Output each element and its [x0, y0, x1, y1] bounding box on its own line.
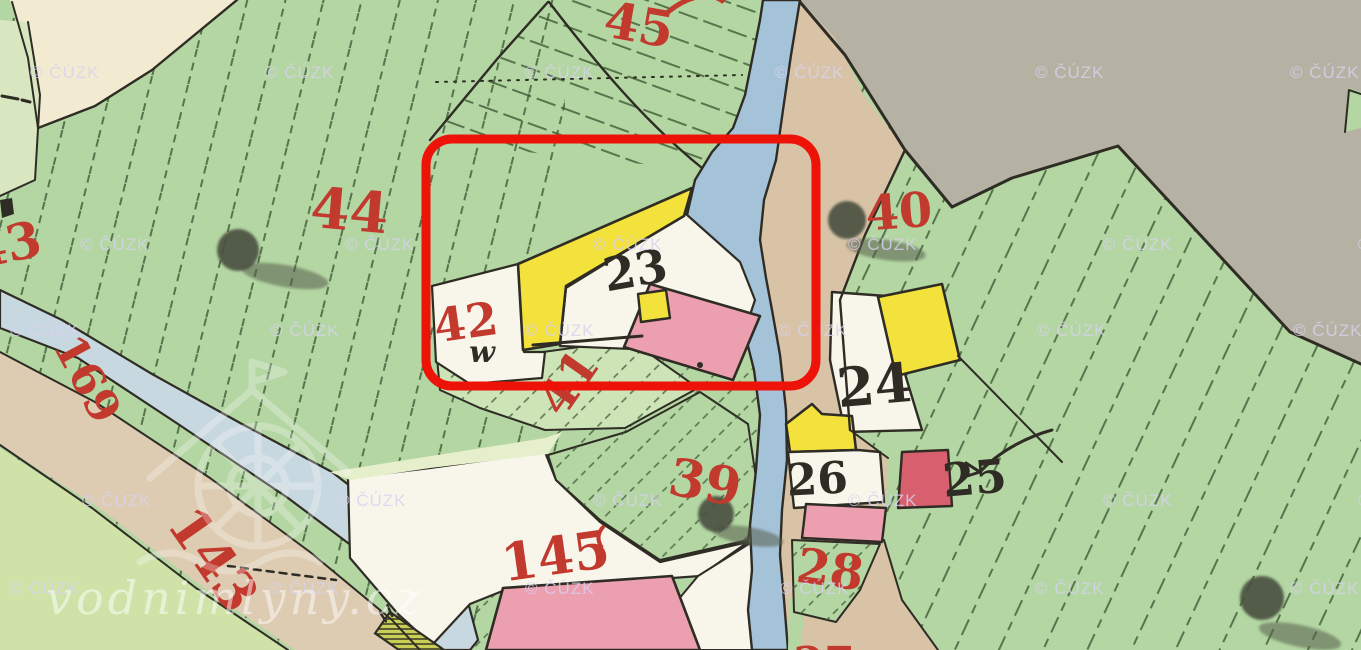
cuzk-watermark: © ČÚZK [1035, 63, 1105, 82]
cuzk-watermark: © ČÚZK [270, 321, 340, 340]
cuzk-watermark: © ČÚZK [1293, 321, 1361, 340]
cuzk-watermark: © ČÚZK [1290, 63, 1360, 82]
cuzk-watermark: © ČÚZK [848, 491, 918, 510]
annotation-w: w [469, 335, 496, 370]
cuzk-watermark: © ČÚZK [1103, 235, 1173, 254]
map-canvas: 45 44 43 40 42 w 41 39 169 143 145 28 27… [0, 0, 1361, 650]
cuzk-watermark: © ČÚZK [30, 63, 100, 82]
cuzk-watermark: © ČÚZK [10, 321, 80, 340]
cuzk-watermark: © ČÚZK [780, 579, 850, 598]
parcel-label-27: 27 [793, 638, 854, 650]
cuzk-watermark: © ČÚZK [80, 235, 150, 254]
map-dot [697, 362, 703, 368]
cuzk-watermark: © ČÚZK [345, 235, 415, 254]
cadastral-map: 45 44 43 40 42 w 41 39 169 143 145 28 27… [0, 0, 1361, 650]
house-label-26: 26 [785, 452, 849, 506]
cuzk-watermark: © ČÚZK [265, 63, 335, 82]
cuzk-watermark: © ČÚZK [775, 63, 845, 82]
cuzk-watermark: © ČÚZK [1290, 579, 1360, 598]
parcel-label-40: 40 [864, 182, 935, 243]
house-label-24: 24 [834, 350, 914, 420]
cuzk-watermark: © ČÚZK [1037, 321, 1107, 340]
cuzk-watermark: © ČÚZK [525, 579, 595, 598]
parcel-label-39: 39 [664, 446, 746, 519]
cuzk-watermark: © ČÚZK [848, 235, 918, 254]
house-label-25: 25 [940, 448, 1008, 507]
cuzk-watermark: © ČÚZK [525, 321, 595, 340]
cuzk-watermark: © ČÚZK [593, 491, 663, 510]
cuzk-watermark: © ČÚZK [525, 63, 595, 82]
cuzk-watermark: © ČÚZK [82, 491, 152, 510]
cuzk-watermark: © ČÚZK [1035, 579, 1105, 598]
cuzk-watermark: © ČÚZK [1103, 491, 1173, 510]
site-watermark: vodnimlyny.cz [46, 571, 424, 625]
cuzk-watermark: © ČÚZK [337, 491, 407, 510]
cuzk-watermark: © ČÚZK [593, 235, 663, 254]
